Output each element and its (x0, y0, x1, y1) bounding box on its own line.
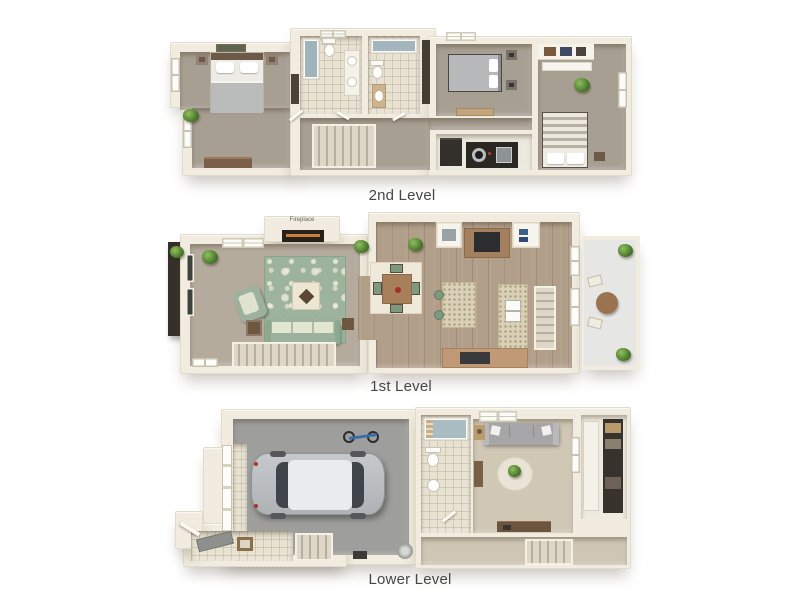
level-label-lower: Lower Level (181, 571, 639, 588)
window-icon (571, 437, 580, 473)
master-bed (210, 52, 264, 112)
car-wheel (350, 513, 366, 519)
sink-divider (505, 310, 521, 312)
pillow (541, 425, 552, 436)
desk (497, 521, 551, 532)
plant-icon (408, 238, 423, 251)
dining-table (382, 274, 412, 304)
plant-icon (170, 246, 184, 258)
car-wheel (270, 451, 286, 457)
sink (375, 91, 383, 101)
bathtub (302, 38, 320, 80)
level-label-1st: 1st Level (162, 378, 640, 395)
water-heater (397, 543, 413, 559)
level-label-2nd: 2nd Level (170, 187, 634, 204)
kitchen-island (442, 282, 476, 328)
tub-water (433, 420, 466, 438)
window-icon (171, 58, 180, 92)
round-rug (497, 457, 533, 491)
dresser (204, 157, 252, 168)
sofa-seam (509, 425, 510, 437)
pillow (216, 62, 234, 73)
chair-cushion (238, 291, 260, 315)
closet-door (583, 421, 599, 511)
dining-chair (373, 282, 382, 295)
pillow (489, 59, 498, 72)
garage-door (222, 445, 232, 533)
lamp (477, 429, 482, 434)
storage-box (605, 477, 621, 489)
car-rear-window (276, 462, 288, 508)
dining-chair (390, 264, 403, 273)
dryer-door-icon (496, 147, 512, 163)
plant-icon (508, 465, 521, 477)
fireplace-label-wrap: Fireplace (264, 214, 340, 224)
toilet-bowl (372, 66, 383, 79)
laundry-counter (440, 138, 462, 166)
window-icon (186, 288, 194, 316)
bench (456, 108, 494, 116)
den-sofa (483, 423, 559, 445)
side-table (474, 425, 485, 440)
tub-water (373, 41, 415, 51)
bedroom3-bed (542, 112, 588, 168)
bathtub (423, 417, 469, 441)
desk-items (503, 525, 511, 530)
nightstand (506, 50, 517, 60)
bar-stool (434, 290, 444, 300)
dining-chair (411, 282, 420, 295)
window-icon (192, 358, 218, 367)
sofa-cushions (272, 322, 334, 333)
tub-water (305, 41, 317, 77)
sofa-arm (335, 320, 340, 344)
kitchen-sink (505, 300, 521, 322)
nightstand (594, 152, 605, 161)
car-taillight (254, 462, 258, 466)
headboard (498, 55, 501, 91)
car-wheel (350, 451, 366, 457)
skylight-icon (222, 238, 264, 248)
washer-dryer (466, 142, 518, 168)
toilet-bowl (324, 44, 335, 57)
lower-staircase (525, 539, 573, 565)
bar-stool (434, 310, 444, 320)
sink-basin (442, 229, 456, 241)
window-icon (570, 288, 580, 326)
peninsula-counter (442, 348, 528, 368)
garage-entry-tile (233, 443, 247, 533)
centerpiece (395, 287, 401, 293)
staircase (312, 124, 376, 168)
fireplace-embers (286, 234, 320, 237)
window-icon (618, 72, 627, 108)
plant-icon (618, 244, 633, 257)
sofa-arm (266, 320, 271, 344)
coffee-table (292, 282, 320, 310)
closet-light (542, 62, 592, 71)
pillow (567, 153, 584, 164)
towel (426, 420, 433, 438)
bathtub (370, 38, 418, 54)
nightstand (266, 54, 278, 65)
dining-chair (390, 304, 403, 313)
wall-shelf (474, 461, 483, 487)
fireplace-label: Fireplace (264, 217, 340, 223)
plant-icon (202, 250, 218, 264)
closet-shelving (603, 419, 623, 513)
car-roof (288, 460, 352, 510)
storage-bin (576, 47, 586, 56)
fireplace (282, 230, 324, 242)
sofa (266, 320, 340, 344)
cooktop (460, 352, 490, 364)
kitchen-cabinet (512, 222, 540, 248)
plant-icon (183, 109, 199, 122)
sofa-arm (553, 423, 559, 445)
skylight-icon (446, 32, 476, 41)
pillow (240, 62, 258, 73)
plant-icon (354, 240, 369, 253)
skylight-icon (479, 411, 517, 422)
sink (347, 56, 357, 66)
plant-icon (574, 78, 590, 92)
hallway-right (428, 118, 532, 130)
pillow (490, 425, 501, 436)
floorplan-sheet: { "image": { "type": "3d-floor-plan", "b… (0, 0, 800, 600)
closet-shelving (291, 74, 299, 104)
window-icon (186, 254, 194, 282)
sink (347, 77, 357, 87)
skylight-icon (320, 30, 346, 38)
closet-shelf (538, 44, 594, 60)
sofa-seam (533, 425, 534, 437)
entry-staircase (295, 533, 333, 561)
blanket (211, 81, 263, 113)
utility-items (353, 551, 367, 559)
table-tray (299, 289, 315, 305)
side-table (342, 318, 354, 330)
storage-box (605, 439, 621, 449)
side-chest (246, 320, 262, 336)
car (251, 453, 385, 515)
car-wheel (270, 513, 286, 519)
dishes (519, 229, 528, 235)
toilet-bowl (427, 453, 439, 467)
dishes (519, 237, 528, 242)
storage-bin (560, 47, 572, 56)
floor-plan-lower-level (175, 403, 633, 577)
double-vanity (344, 50, 360, 96)
linen-shelves (422, 40, 430, 104)
floor-plan-2nd-level (170, 14, 634, 184)
lower-corridor (421, 537, 627, 565)
wall-art (216, 44, 246, 52)
nightstand (196, 54, 208, 65)
storage-bin (544, 47, 556, 56)
range-counter (464, 228, 510, 258)
pedestal-sink (427, 479, 440, 492)
plant-icon (616, 348, 631, 361)
staircase-up (534, 286, 556, 350)
bedroom2-bed (448, 54, 502, 92)
entry-rug-frame (237, 537, 253, 551)
pillow (489, 75, 498, 88)
washer-door-icon (472, 148, 486, 162)
window-icon (570, 246, 580, 276)
vanity (372, 84, 386, 108)
cooktop (474, 232, 500, 252)
storage-box (605, 423, 621, 433)
staircase-down (232, 342, 336, 368)
washer-light (488, 152, 491, 155)
floor-plan-1st-level: Fireplace (162, 212, 640, 378)
car-windshield (352, 462, 364, 508)
striped-duvet (543, 113, 587, 149)
kitchen-cabinet (436, 222, 462, 248)
patio-table (596, 292, 618, 314)
headboard (211, 53, 263, 60)
pillow (547, 153, 564, 164)
nightstand (506, 80, 517, 90)
car-taillight (254, 504, 258, 508)
